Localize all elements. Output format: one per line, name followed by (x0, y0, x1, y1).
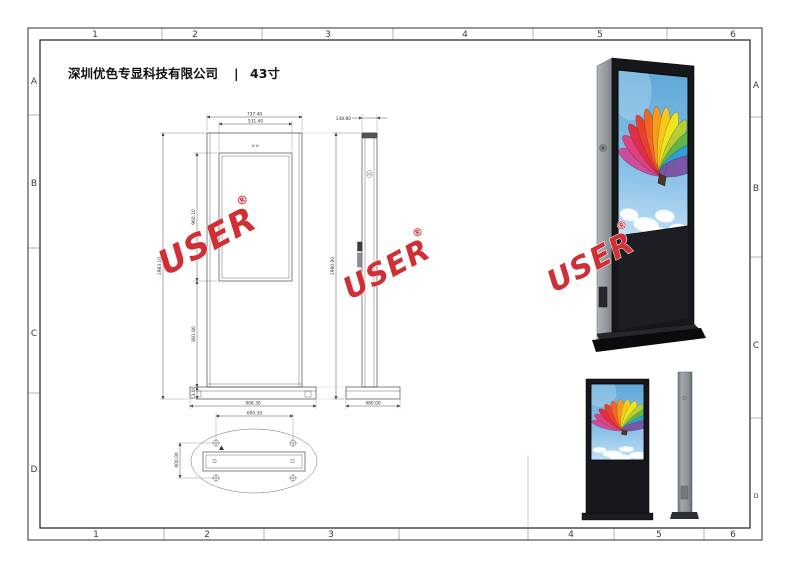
watermark-text: USER (337, 232, 436, 307)
dim-side-overall-height: 1980.00 (330, 257, 336, 275)
zone-label-bottom-6: 6 (730, 530, 736, 540)
zone-label-top-2: 2 (192, 30, 198, 40)
model-size: 43寸 (250, 66, 280, 81)
bottom-view: 600.30 400.00 (174, 411, 317, 493)
small-side-door (681, 486, 688, 499)
front-plinth (190, 387, 316, 399)
side-plinth (346, 387, 400, 399)
anchor-bolts (212, 439, 297, 482)
zone-ticks-right (750, 117, 762, 418)
dim-bolt-spacing-y: 400.00 (174, 452, 180, 468)
dim-side-depth: 148.80 (336, 116, 352, 122)
zone-ticks-top (162, 28, 667, 40)
dim-front-lower-height: 881.80 (191, 326, 197, 342)
render-small-front (582, 378, 657, 520)
drawing-canvas: 1 2 3 4 5 6 1 2 3 4 5 6 A B C D A B C D … (0, 0, 790, 574)
side-top-cap (362, 133, 377, 138)
watermark-front-view: USER ® (148, 191, 267, 284)
sheet-title: 深圳优色专显科技有限公司 | 43寸 (68, 66, 280, 81)
dim-bolt-spacing-x: 600.30 (247, 411, 263, 417)
side-keyhole (367, 170, 372, 177)
dim-front-base-width: 908.30 (245, 401, 261, 407)
small-front-base (582, 513, 653, 520)
dim-front-screen-height: 960.10 (191, 209, 197, 225)
front-camera-mark (253, 145, 255, 147)
dim-front-base-height: 53.00 (191, 387, 197, 400)
zone-label-top-5: 5 (597, 30, 603, 40)
zone-label-left-d: D (31, 465, 38, 475)
cad-drawing-sheet: 1 2 3 4 5 6 1 2 3 4 5 6 A B C D A B C D … (0, 0, 790, 574)
dim-front-screen-width: 531.40 (248, 119, 264, 125)
zone-label-left-a: A (31, 77, 38, 87)
front-cabinet-outline (207, 133, 302, 387)
zone-label-bottom-5: 5 (656, 530, 662, 540)
zone-label-top-4: 4 (462, 30, 468, 40)
zone-label-bottom-4: 4 (568, 530, 574, 540)
zone-label-top-1: 1 (92, 30, 98, 40)
render-main-perspective (592, 56, 706, 352)
zone-label-bottom-2: 2 (204, 530, 210, 540)
small-side-base (670, 512, 699, 519)
watermark-text: USER (151, 199, 263, 284)
zone-label-bottom-1: 1 (93, 530, 99, 540)
zone-label-top-6: 6 (730, 30, 736, 40)
zone-label-right-b: B (753, 184, 759, 194)
render-access-door (599, 287, 607, 307)
zone-label-left-b: B (31, 179, 37, 189)
title-divider: | (234, 66, 239, 81)
zone-label-top-3: 3 (325, 30, 331, 40)
zone-label-right-a: A (753, 81, 760, 91)
small-side-lock (683, 396, 687, 400)
dim-front-overall-width: 737.40 (247, 112, 263, 118)
company-name: 深圳优色专显科技有限公司 (68, 66, 218, 81)
watermark-side-view: USER ® (334, 224, 440, 307)
zone-label-right-c: C (753, 341, 759, 351)
render-small-side (670, 372, 699, 519)
zone-label-left-c: C (31, 329, 37, 339)
datum-mark (219, 446, 224, 451)
zone-label-right-d: D (753, 492, 758, 500)
zone-ticks-left (28, 115, 40, 393)
zone-label-bottom-3: 3 (328, 530, 334, 540)
dim-side-base-depth: 480.00 (365, 401, 381, 407)
bottom-view-ellipse (191, 429, 317, 493)
